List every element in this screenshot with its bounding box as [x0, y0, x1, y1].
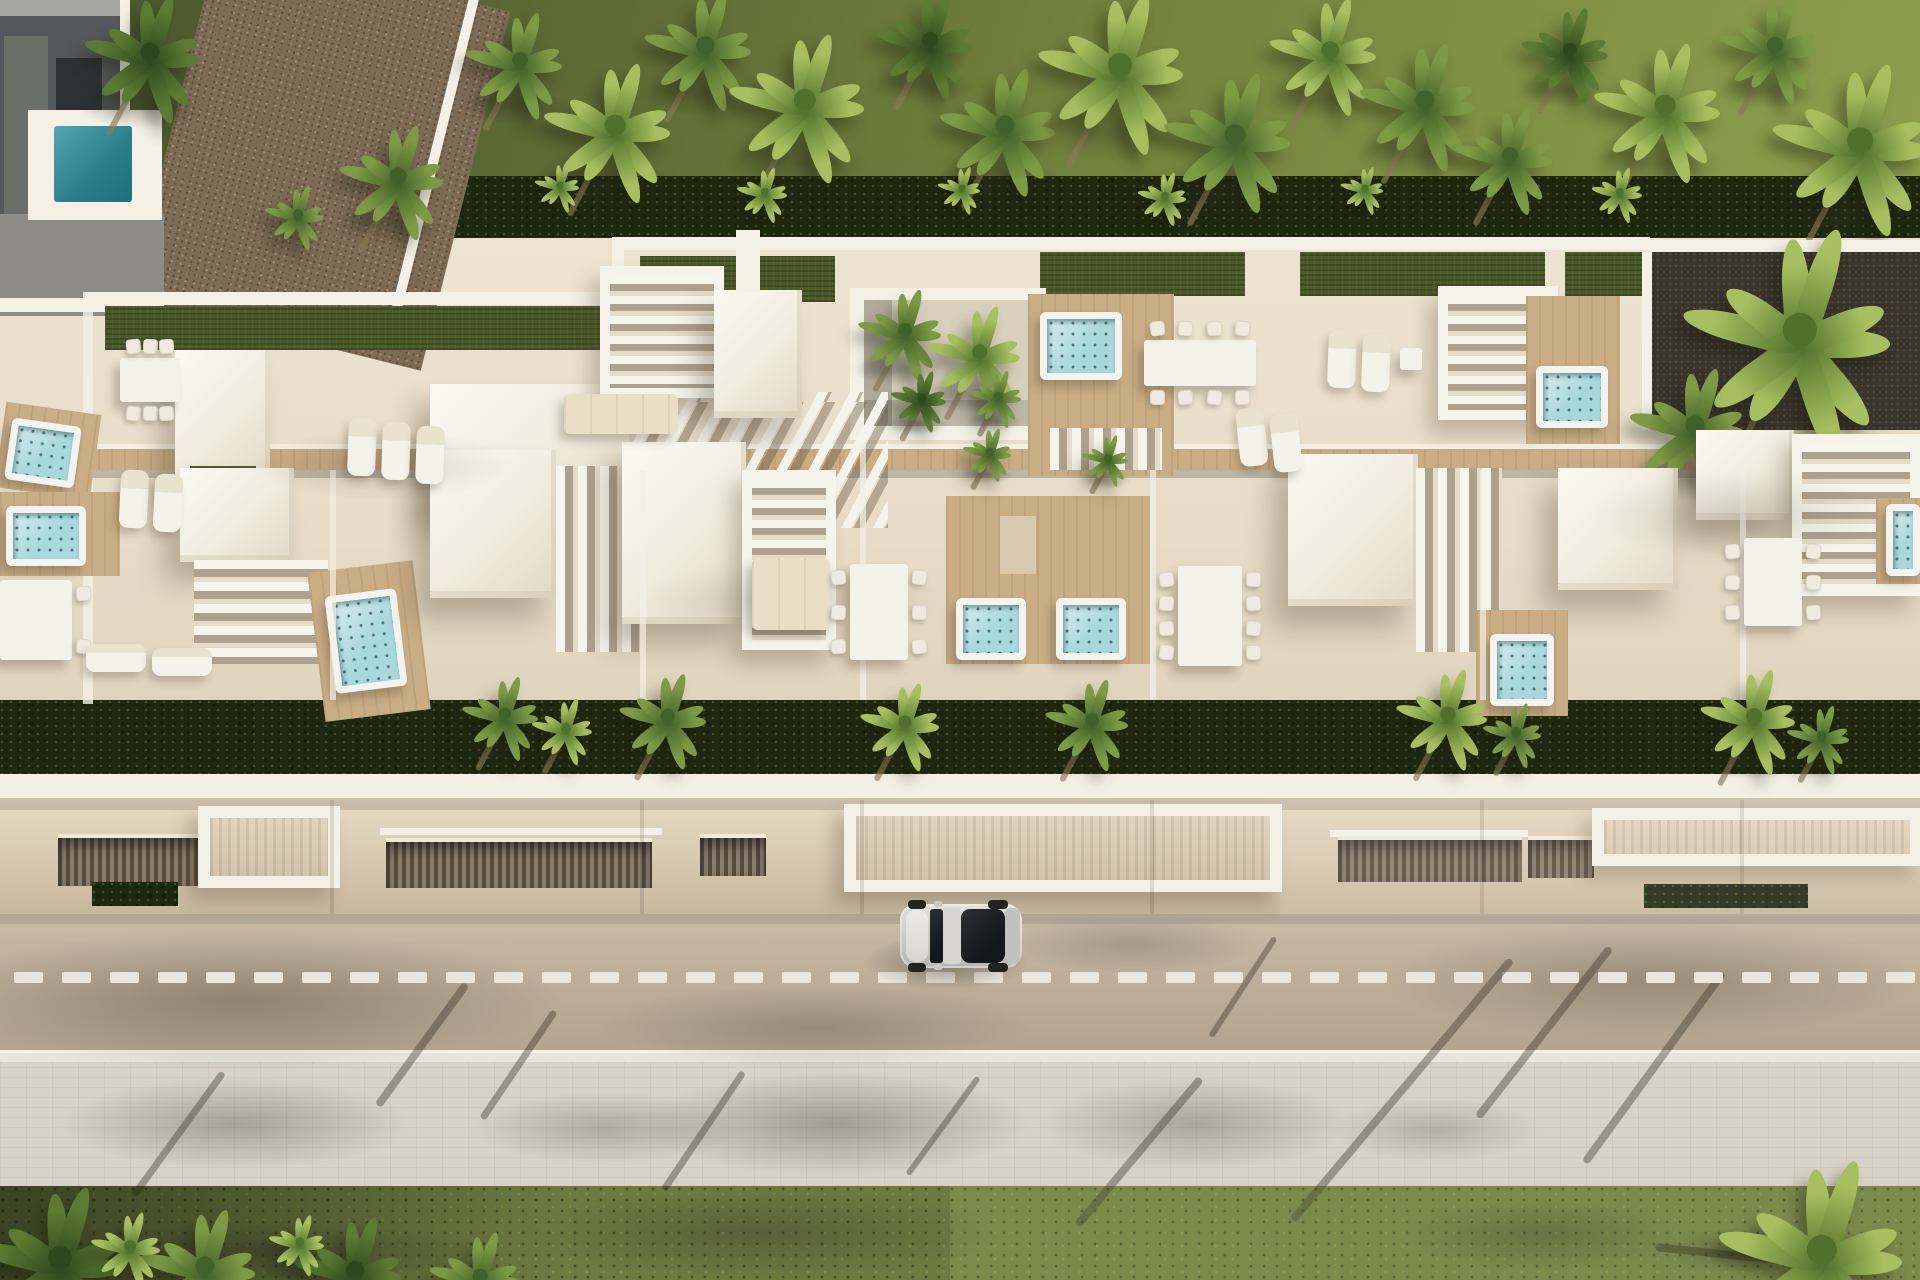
dining-chair	[76, 586, 92, 602]
jacuzzi	[324, 588, 407, 694]
hedge-palm	[1705, 667, 1803, 765]
party-wall	[330, 470, 336, 700]
window-ledge	[380, 828, 662, 835]
hedge-palm	[1401, 667, 1495, 761]
lane-dash	[1358, 972, 1387, 983]
dining-set	[1144, 340, 1256, 386]
palm-crown	[605, 115, 626, 136]
dining-chair	[1806, 574, 1821, 589]
facade-seam	[1150, 800, 1154, 914]
lane-dash	[110, 972, 139, 983]
roof-lawn	[1565, 252, 1653, 296]
swimming-pool	[54, 126, 132, 202]
lane-dash	[1646, 972, 1675, 983]
lane-dash	[638, 972, 667, 983]
outdoor-sofa	[564, 394, 678, 434]
hedge-palm	[1049, 677, 1135, 763]
palm-crown	[346, 1261, 364, 1279]
car-wheel	[908, 900, 926, 909]
palm-tree	[735, 30, 875, 170]
lane-dash	[1886, 972, 1915, 983]
lane-dash	[1262, 972, 1291, 983]
dining-chair	[1206, 389, 1222, 405]
dining-set	[0, 580, 72, 660]
wall-spur	[736, 230, 760, 292]
sun-lounger	[347, 418, 377, 477]
sun-lounger	[1269, 413, 1303, 474]
dining-set	[1744, 538, 1802, 626]
outdoor-sofa	[752, 558, 830, 630]
courtyard-palm	[971, 369, 1025, 423]
stair-volume	[1288, 454, 1418, 606]
palm-shadow	[60, 1078, 410, 1170]
dining-chair	[1245, 620, 1261, 636]
palm-crown	[1104, 454, 1112, 462]
roof-lawn	[1040, 252, 1245, 296]
lane-dash	[1070, 972, 1099, 983]
lawn-shadow	[520, 1186, 1000, 1280]
dining-chair	[1805, 543, 1821, 559]
dining-chair	[1245, 596, 1261, 612]
dining-chair	[1206, 321, 1222, 337]
palm-crown	[1655, 95, 1676, 116]
dining-chair	[1725, 574, 1741, 590]
facade-seam	[640, 800, 644, 914]
lane-dash	[1166, 972, 1195, 983]
sun-lounger	[381, 422, 411, 481]
lawn-shadow	[1400, 1200, 1680, 1270]
hedge-palm	[535, 697, 597, 759]
dining-chair	[159, 339, 175, 355]
palm-crown	[1361, 184, 1368, 191]
car-wheel	[908, 963, 926, 972]
dining-chair	[1235, 390, 1250, 405]
sun-lounger	[1327, 330, 1357, 389]
fern-shrub	[940, 166, 984, 210]
dining-chair	[1805, 604, 1821, 620]
lane-dash	[1598, 972, 1627, 983]
stair-volume	[714, 290, 802, 418]
dining-chair	[1159, 596, 1175, 612]
palm-crown	[898, 323, 912, 337]
lane-dash	[158, 972, 187, 983]
planter-palm	[1084, 434, 1132, 482]
lane-dash	[1214, 972, 1243, 983]
lane-dash	[302, 972, 331, 983]
hedge-palm	[1790, 704, 1854, 768]
car-mirror	[934, 964, 942, 970]
palm-crown	[512, 52, 528, 68]
dining-chair	[1234, 320, 1250, 336]
louvered-window	[386, 838, 652, 888]
lane-dash	[1454, 972, 1483, 983]
dining-chair	[911, 569, 927, 585]
lane-dash	[62, 972, 91, 983]
dining-set	[1178, 566, 1242, 666]
jacuzzi	[1536, 366, 1608, 428]
palm-crown	[1746, 708, 1762, 724]
car-hood-highlight	[906, 910, 928, 962]
jacuzzi	[6, 506, 86, 566]
palm-crown	[986, 448, 994, 456]
sun-lounger	[119, 469, 150, 528]
lane-dash	[1790, 972, 1819, 983]
palm-crown	[1511, 727, 1521, 737]
lane-dash	[686, 972, 715, 983]
lane-dash	[542, 972, 571, 983]
palm-tree	[1727, 1155, 1917, 1280]
dining-chair	[830, 569, 847, 586]
lane-dash	[398, 972, 427, 983]
dining-chair	[1246, 645, 1261, 660]
party-wall	[1480, 470, 1486, 700]
balcony-frame	[844, 804, 1282, 892]
sun-lounger	[1361, 334, 1391, 393]
palm-crown	[561, 723, 571, 733]
lane-dash	[1838, 972, 1867, 983]
palm-crown	[1767, 37, 1783, 53]
dining-chair	[912, 604, 927, 619]
sun-lounger	[86, 644, 146, 672]
hedge-palm	[1486, 702, 1546, 762]
dining-chair	[1159, 620, 1175, 636]
hedge-palm	[466, 675, 544, 753]
dining-chair	[1178, 389, 1194, 405]
car-mirror	[934, 901, 942, 907]
dining-chair	[125, 405, 141, 421]
balcony-frame	[198, 806, 340, 888]
terrace-shadow	[1590, 470, 1890, 560]
dining-chair	[1246, 572, 1261, 587]
towel	[1000, 516, 1036, 574]
lane-dash	[494, 972, 523, 983]
lane-dash	[734, 972, 763, 983]
car-windshield	[930, 909, 943, 963]
tropical-plant	[94, 1210, 166, 1280]
dining-chair	[158, 405, 174, 421]
lane-dash	[1742, 972, 1771, 983]
dining-set	[850, 564, 908, 660]
sun-lounger	[415, 426, 445, 485]
dining-chair	[142, 406, 157, 421]
palm-crown	[1847, 127, 1873, 153]
jacuzzi	[4, 417, 82, 488]
fern-shrub	[268, 184, 328, 244]
dining-chair	[1149, 320, 1166, 337]
palm-tree	[344, 122, 452, 230]
lane-dash	[590, 972, 619, 983]
car-roof	[943, 908, 961, 964]
dining-chair	[1158, 644, 1174, 660]
lane-dash	[1310, 972, 1339, 983]
palm-crown	[994, 392, 1003, 401]
lane-dash	[206, 972, 235, 983]
palm-crown	[124, 1240, 136, 1252]
dining-chair	[911, 638, 927, 654]
lane-dash	[1118, 972, 1147, 983]
louvered-window	[700, 834, 766, 876]
lane-dash	[1550, 972, 1579, 983]
tree-shadow	[1000, 914, 1260, 974]
palm-tree	[1460, 105, 1560, 205]
palm-crown	[293, 209, 303, 219]
lane-dash	[1502, 972, 1531, 983]
tropical-plant	[271, 1213, 329, 1271]
roof-lawn	[105, 306, 610, 350]
fern-shrub	[739, 166, 791, 218]
jacuzzi	[1886, 504, 1920, 576]
facade-seam	[860, 800, 864, 914]
party-wall	[1150, 470, 1156, 700]
lane-dash	[446, 972, 475, 983]
fern-shrub	[1140, 171, 1190, 221]
palm-crown	[958, 184, 965, 191]
roof-perimeter-wall	[618, 237, 1650, 250]
dining-set	[120, 358, 180, 402]
car-wheel	[988, 963, 1008, 972]
tropical-plant	[434, 1230, 526, 1280]
facade-seam	[330, 800, 334, 914]
jacuzzi	[1490, 634, 1554, 706]
sun-lounger	[152, 648, 212, 676]
palm-crown	[473, 1269, 488, 1280]
palm-crown	[1161, 192, 1169, 200]
lane-dash	[1406, 972, 1435, 983]
louvered-window	[58, 834, 200, 886]
terrace-shadow	[250, 430, 510, 500]
sun-lounger	[153, 473, 184, 532]
palm-tree	[1780, 60, 1920, 220]
palm-crown	[48, 1246, 72, 1270]
dining-chair	[831, 639, 847, 655]
jacuzzi	[956, 598, 1026, 660]
tree-shadow	[0, 930, 560, 1070]
car-wheel	[988, 900, 1008, 909]
jacuzzi	[1040, 312, 1122, 380]
dining-chair	[1178, 321, 1194, 337]
facade-parapet	[0, 774, 1920, 800]
palm-crown	[1440, 706, 1455, 721]
lane-dash	[350, 972, 379, 983]
lane-dash	[830, 972, 859, 983]
street-hedge	[0, 700, 1920, 776]
palm-crown	[1321, 41, 1339, 59]
sun-lounger	[1235, 407, 1269, 468]
facade-sunlight	[1280, 798, 1920, 916]
dining-chair	[1725, 605, 1741, 621]
palm-crown	[1225, 125, 1246, 146]
hedge-palm	[864, 681, 946, 763]
car-tail	[1005, 908, 1020, 964]
pergola	[600, 266, 724, 398]
car-rear-glass	[961, 909, 1005, 963]
facade-hedge	[92, 882, 178, 906]
roof-perimeter-wall	[85, 292, 620, 305]
dining-chair	[1724, 543, 1741, 560]
dining-chair	[1150, 390, 1165, 405]
fern-shrub	[537, 162, 583, 208]
palm-crown	[1085, 713, 1099, 727]
dining-chair	[125, 338, 142, 355]
lane-dash	[1694, 972, 1723, 983]
fern-shrub	[1343, 166, 1387, 210]
fern-shrub	[1594, 166, 1646, 218]
palm-tree	[90, 0, 210, 112]
courtyard-palm	[893, 369, 951, 427]
palm-crown	[696, 36, 714, 54]
hedge-palm	[623, 671, 713, 761]
dining-chair	[1158, 571, 1175, 588]
palm-crown	[1108, 53, 1132, 77]
jacuzzi	[1056, 598, 1126, 660]
planter-palm	[965, 427, 1015, 477]
palm-crown	[922, 32, 938, 48]
lane-dash	[14, 972, 43, 983]
tree-shadow	[600, 985, 1030, 1069]
palm-shadow	[1040, 1078, 1350, 1170]
palm-crown	[1502, 147, 1518, 163]
palm-tree	[1600, 40, 1730, 170]
dining-chair	[831, 604, 847, 620]
side-table	[1400, 348, 1422, 370]
aerial-architectural-render	[0, 0, 1920, 1280]
lane-dash	[254, 972, 283, 983]
dining-chair	[142, 339, 158, 355]
lane-dash	[782, 972, 811, 983]
